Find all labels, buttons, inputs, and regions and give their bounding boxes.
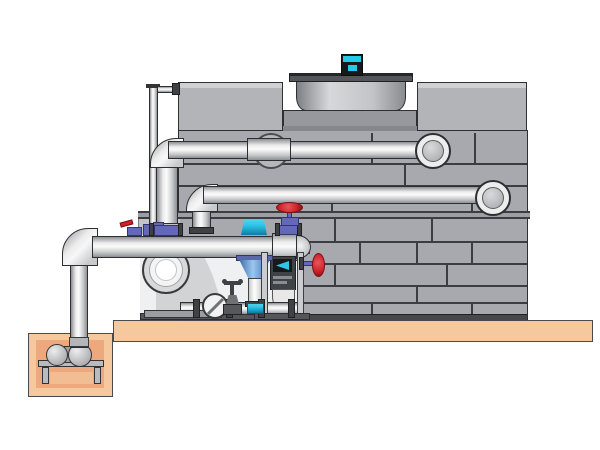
side-valve-flange bbox=[299, 257, 304, 270]
riser-valve-flange bbox=[178, 223, 183, 236]
panel-seam bbox=[431, 219, 433, 241]
upper-riser-pipe bbox=[156, 164, 178, 224]
sensor-transmitter bbox=[241, 220, 267, 235]
riser-flange bbox=[189, 227, 214, 234]
panel-seam bbox=[334, 263, 336, 285]
suction-riser-pipe bbox=[70, 262, 88, 348]
fan-motor bbox=[341, 54, 363, 76]
panel-bevel bbox=[179, 83, 282, 88]
pump-suction-eye bbox=[155, 259, 177, 281]
frame-display-line bbox=[273, 276, 292, 279]
panel-seam bbox=[179, 163, 527, 165]
lower-pipe-inlet-face bbox=[482, 187, 504, 209]
globe-valve-bonnet bbox=[281, 217, 299, 226]
sump-pump-stand-leg bbox=[42, 367, 49, 384]
upper-pipe-inlet-face bbox=[422, 140, 444, 162]
standpipe-wall-flange bbox=[172, 83, 180, 95]
panel-seam bbox=[446, 263, 448, 285]
panel-seam bbox=[471, 302, 473, 314]
panel-seam bbox=[474, 133, 476, 163]
upper-distribution-pipe bbox=[168, 141, 426, 159]
panel-seam bbox=[416, 285, 418, 302]
pipe-flange bbox=[288, 299, 295, 318]
tower-top-right-panel bbox=[417, 82, 527, 131]
suction-pipe-pit-collar bbox=[69, 337, 89, 347]
panel-seam bbox=[471, 241, 473, 263]
side-valve-handwheel-red bbox=[312, 253, 325, 277]
pipe-flange bbox=[193, 299, 200, 318]
panel-seam bbox=[371, 302, 373, 314]
panel-seam bbox=[416, 241, 418, 263]
sump-pump-stand-leg bbox=[94, 367, 101, 384]
gate-valve-handle-knob bbox=[238, 279, 243, 284]
diagram-canvas bbox=[0, 0, 600, 450]
flow-meter bbox=[247, 303, 264, 314]
concrete-pad bbox=[113, 320, 593, 342]
frame-display-line bbox=[273, 281, 287, 284]
panel-bevel bbox=[418, 83, 526, 88]
check-valve-disc-indicator bbox=[207, 298, 224, 315]
gate-valve-handle-knob bbox=[222, 279, 227, 284]
riser-valve-flange bbox=[149, 223, 154, 236]
globe-valve-handwheel-red bbox=[276, 202, 303, 213]
tower-top-left-panel bbox=[178, 82, 283, 131]
sump-pit-floor-highlight bbox=[50, 372, 93, 384]
fan-shroud bbox=[296, 80, 406, 111]
globe-valve-flange bbox=[275, 223, 280, 236]
fan-motor-top-band bbox=[343, 56, 361, 62]
lower-distribution-pipe bbox=[203, 186, 481, 204]
riser-isolation-valve bbox=[154, 225, 179, 236]
gate-valve-body bbox=[223, 304, 242, 315]
sump-pump-motor-end bbox=[46, 344, 68, 366]
panel-seam bbox=[334, 219, 336, 241]
fan-motor-window bbox=[348, 65, 357, 71]
panel-seam bbox=[359, 241, 361, 263]
upper-pipe-coupling bbox=[247, 138, 291, 161]
panel-seam bbox=[404, 163, 406, 185]
drain-valve-body bbox=[127, 227, 142, 236]
fan-deck-ledge bbox=[283, 126, 417, 131]
